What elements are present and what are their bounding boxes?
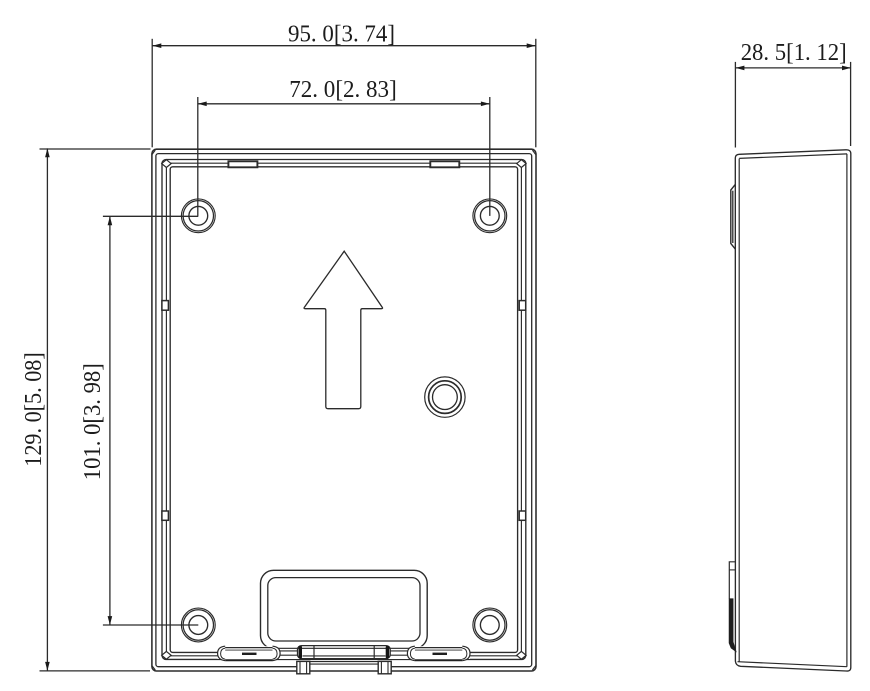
- svg-text:28. 5[1. 12]: 28. 5[1. 12]: [741, 40, 847, 66]
- svg-text:72. 0[2. 83]: 72. 0[2. 83]: [289, 77, 397, 103]
- svg-text:95. 0[3. 74]: 95. 0[3. 74]: [288, 22, 395, 48]
- svg-text:101. 0[3. 98]: 101. 0[3. 98]: [80, 363, 106, 480]
- svg-text:129. 0[5. 08]: 129. 0[5. 08]: [21, 352, 47, 467]
